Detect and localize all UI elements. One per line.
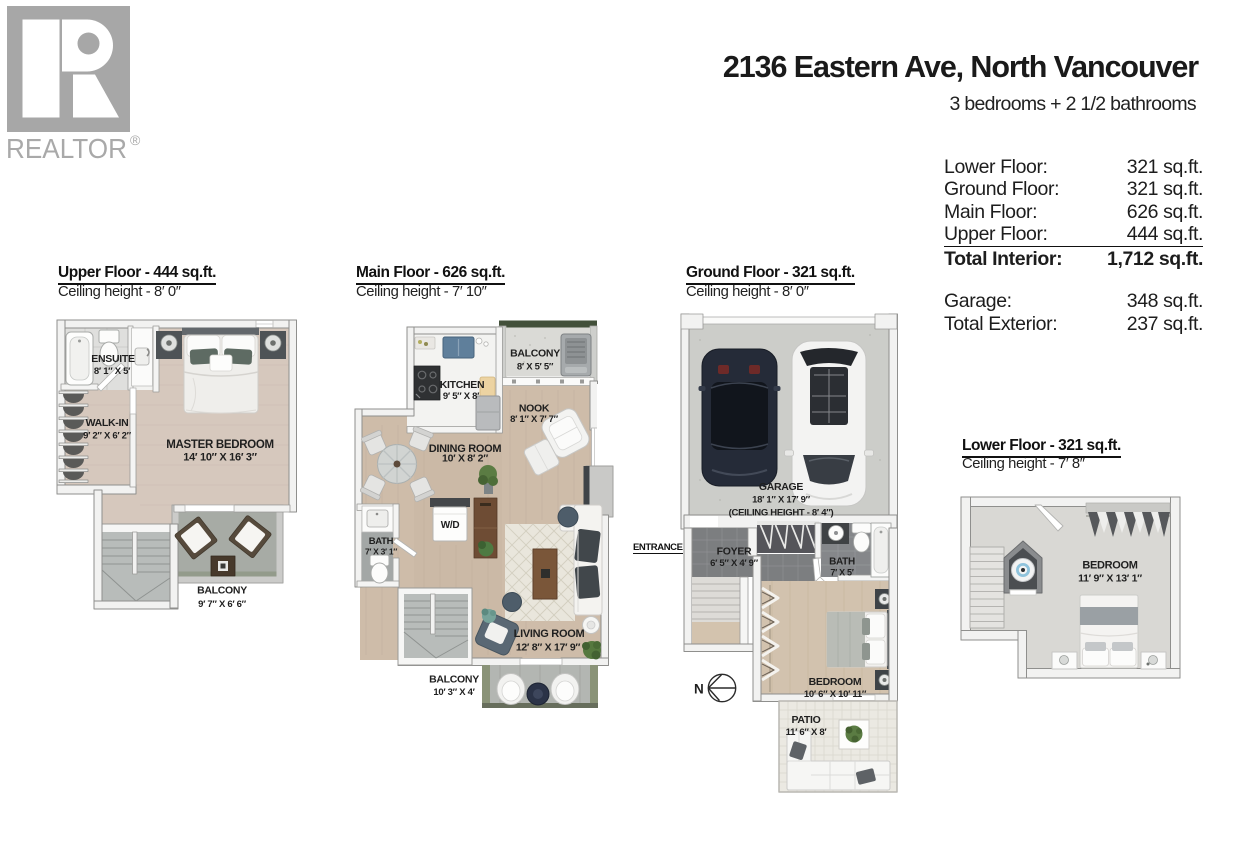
svg-text:WALK-IN: WALK-IN [86,417,129,429]
svg-text:PATIO: PATIO [791,714,820,726]
svg-text:(CEILING HEIGHT - 8′ 4″): (CEILING HEIGHT - 8′ 4″) [729,508,834,519]
svg-text:9′ 7″ X 6′ 6″: 9′ 7″ X 6′ 6″ [198,599,247,610]
svg-text:LIVING ROOM: LIVING ROOM [514,628,585,640]
svg-text:BEDROOM: BEDROOM [809,676,862,688]
svg-text:7′ X 5′: 7′ X 5′ [830,568,853,578]
svg-text:BALCONY: BALCONY [429,674,479,686]
svg-text:18′ 1″ X 17′ 9″: 18′ 1″ X 17′ 9″ [752,495,811,506]
svg-text:9′ 5″ X 8′: 9′ 5″ X 8′ [443,391,480,402]
svg-text:KITCHEN: KITCHEN [440,379,485,391]
svg-text:NOOK: NOOK [519,403,550,415]
svg-text:11′ 9″ X 13′ 1″: 11′ 9″ X 13′ 1″ [1078,573,1142,585]
svg-text:MASTER BEDROOM: MASTER BEDROOM [166,439,274,451]
svg-text:W/D: W/D [441,520,460,531]
svg-text:8′ 1″ X 7′ 7″: 8′ 1″ X 7′ 7″ [510,414,559,425]
svg-text:7′ X 3′ 1″: 7′ X 3′ 1″ [365,547,397,557]
svg-text:BALCONY: BALCONY [510,348,560,360]
svg-text:14′ 10″ X 16′ 3″: 14′ 10″ X 16′ 3″ [183,452,257,464]
svg-text:10′ 3″ X 4′: 10′ 3″ X 4′ [433,687,475,698]
svg-text:BATH: BATH [829,557,855,568]
svg-text:12′ 8″ X 17′ 9″: 12′ 8″ X 17′ 9″ [516,642,581,654]
svg-text:8′ X 5′ 5″: 8′ X 5′ 5″ [517,362,554,373]
svg-text:BATH: BATH [369,536,394,547]
svg-text:6′ 5″ X 4′ 9″: 6′ 5″ X 4′ 9″ [710,558,759,569]
svg-text:10′ X 8′ 2″: 10′ X 8′ 2″ [442,453,488,465]
svg-text:9′ 2″ X 6′ 2″: 9′ 2″ X 6′ 2″ [83,431,132,442]
svg-text:FOYER: FOYER [717,546,752,558]
svg-text:10′ 6″ X 10′ 11″: 10′ 6″ X 10′ 11″ [804,689,867,700]
svg-text:GARAGE: GARAGE [759,481,804,493]
svg-text:8′ 1″ X 5′: 8′ 1″ X 5′ [94,366,131,377]
svg-text:11′ 6″ X 8′: 11′ 6″ X 8′ [786,727,828,738]
svg-text:BEDROOM: BEDROOM [1082,560,1137,572]
svg-text:ENSUITE: ENSUITE [91,353,135,365]
svg-text:BALCONY: BALCONY [197,585,247,597]
svg-text:N: N [694,682,704,697]
